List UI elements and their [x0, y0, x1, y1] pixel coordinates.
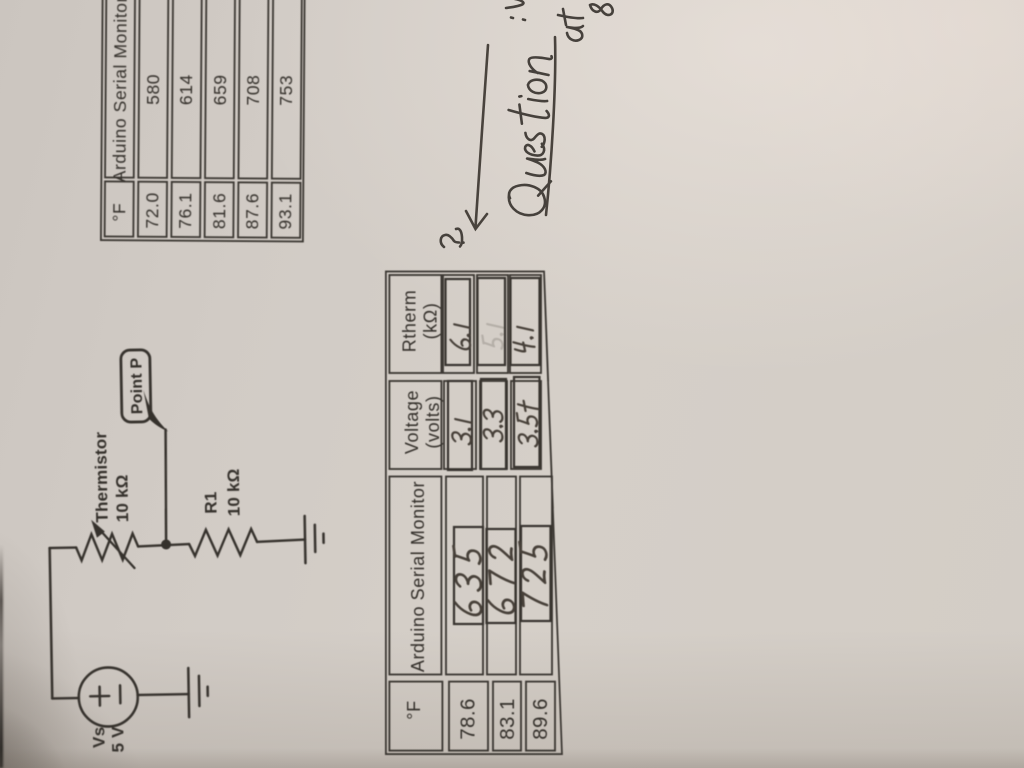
svg-text:76.1: 76.1	[175, 192, 195, 229]
svg-text:Thermistor: Thermistor	[91, 431, 112, 522]
svg-text:580: 580	[143, 73, 163, 104]
svg-text:Arduino Serial Monitor: Arduino Serial Monitor	[109, 0, 130, 182]
svg-text:10 kΩ: 10 kΩ	[224, 468, 244, 516]
svg-text:72.0: 72.0	[142, 192, 162, 229]
svg-text:°F: °F	[404, 700, 424, 719]
svg-text:(kΩ): (kΩ)	[421, 302, 441, 339]
svg-text:83.1: 83.1	[496, 698, 519, 740]
svg-text:78.6: 78.6	[457, 698, 480, 740]
svg-text:Vs: Vs	[89, 727, 108, 749]
svg-text:753: 753	[276, 74, 296, 105]
svg-text:81.6: 81.6	[209, 192, 229, 229]
svg-text:5 V: 5 V	[108, 726, 127, 753]
svg-text:708: 708	[243, 74, 263, 105]
svg-text:87.6: 87.6	[242, 192, 262, 229]
svg-text:°F: °F	[109, 202, 129, 221]
svg-text:Rtherm: Rtherm	[400, 289, 420, 352]
svg-text:Arduino Serial Monitor: Arduino Serial Monitor	[408, 480, 428, 671]
svg-text:659: 659	[210, 74, 230, 105]
svg-text:89.6: 89.6	[529, 698, 552, 740]
svg-text:Point P: Point P	[128, 357, 146, 414]
svg-text:Voltage: Voltage	[402, 389, 422, 453]
svg-text:10 kΩ: 10 kΩ	[112, 474, 132, 522]
svg-text:R1: R1	[201, 491, 220, 513]
svg-text:(volts): (volts)	[423, 395, 443, 448]
svg-text:93.1: 93.1	[275, 193, 295, 230]
svg-text:614: 614	[176, 74, 196, 105]
